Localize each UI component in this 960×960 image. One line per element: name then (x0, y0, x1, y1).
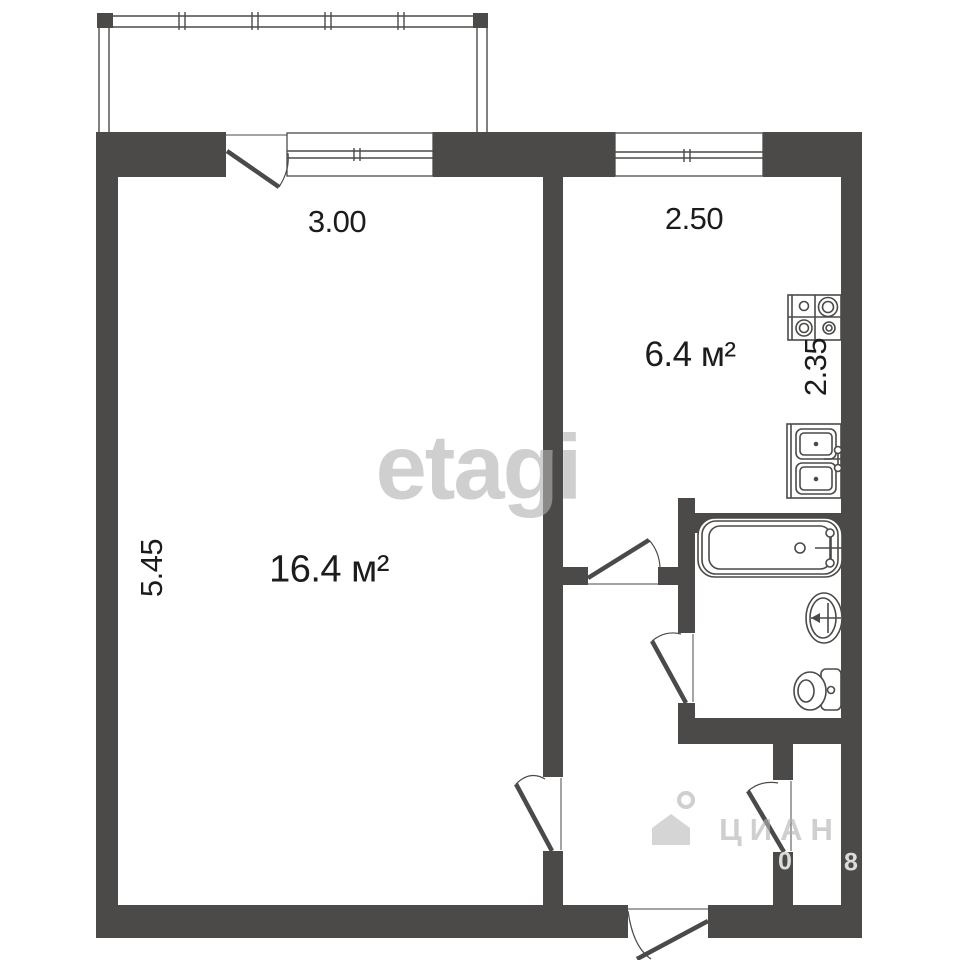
bathroom-bottom-wall (678, 718, 841, 744)
balcony (97, 12, 488, 132)
balcony-corner-post (473, 13, 488, 28)
kitchen-width-dimension: 2.50 (665, 201, 723, 237)
bathtub-icon (698, 518, 842, 577)
kitchen-area-label: 6.4 м² (644, 335, 735, 375)
balcony-door (226, 135, 288, 187)
right-wall (841, 132, 862, 938)
kitchen-door (588, 540, 660, 584)
room-window (287, 133, 433, 176)
room-area-label: 16.4 м² (269, 549, 389, 592)
watermark-digit-left: 0 (778, 848, 792, 877)
kitchen-hall-wall-right (658, 567, 678, 585)
bathroom-sink-icon (806, 593, 842, 643)
room-width-dimension: 3.00 (308, 204, 366, 240)
left-wall (96, 132, 118, 938)
watermark-etagi: etagi (376, 416, 581, 521)
balcony-corner-post (97, 13, 113, 28)
entrance-door (628, 909, 708, 959)
toilet-icon (794, 669, 841, 710)
bottom-wall-left (96, 905, 628, 938)
closet-wall-upper (773, 744, 793, 780)
watermark-digit-right: 8 (844, 849, 858, 878)
room-height-dimension: 5.45 (134, 539, 170, 597)
living-room-door (516, 775, 561, 851)
kitchen-height-dimension: 2.35 (798, 338, 834, 396)
top-wall-middle (433, 132, 615, 177)
room-hall-wall-lower (543, 851, 563, 905)
kitchen-window (615, 133, 763, 176)
stove-icon (788, 295, 841, 340)
watermark-cian: ЦИАН (719, 812, 841, 848)
bathroom-door (652, 633, 693, 703)
kitchen-sink-icon (787, 424, 848, 498)
bottom-wall-right (708, 905, 862, 938)
bathroom-left-wall-upper (678, 498, 695, 633)
kitchen-hall-wall-left (563, 567, 588, 585)
watermark-cian-house-icon (648, 790, 700, 848)
floor-plan: 3.00 5.45 16.4 м² 2.50 2.35 6.4 м² etagi… (0, 0, 960, 960)
